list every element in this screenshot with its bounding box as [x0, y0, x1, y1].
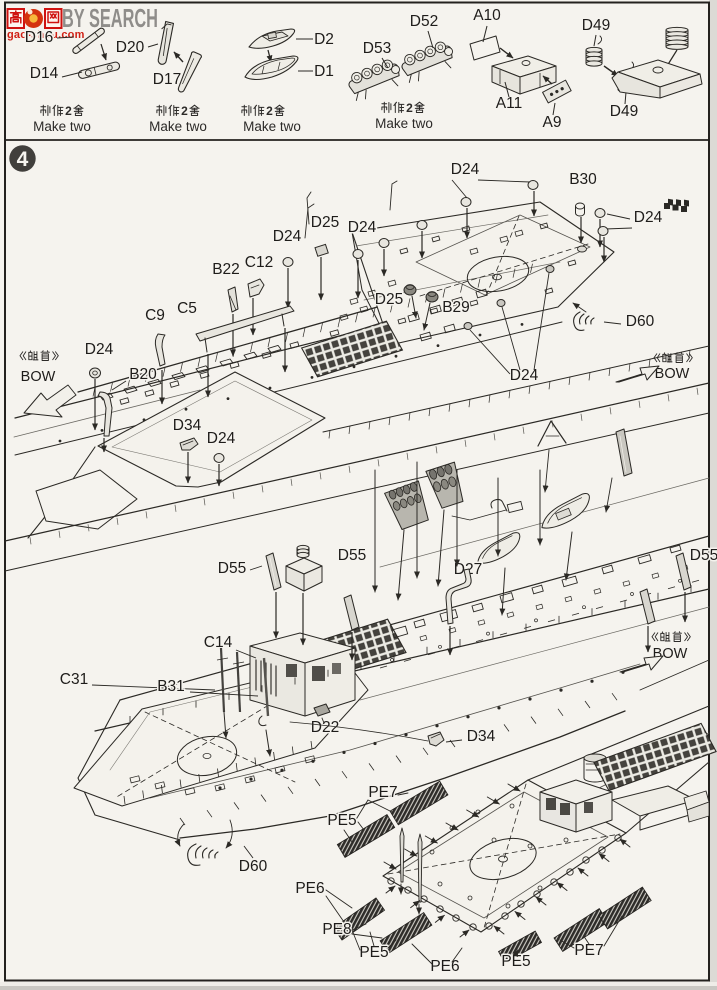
svg-text:D22: D22: [311, 719, 339, 736]
svg-text:D60: D60: [239, 858, 268, 875]
svg-text:D25: D25: [375, 291, 403, 308]
svg-text:2: 2: [406, 101, 413, 115]
svg-text:2: 2: [266, 104, 273, 118]
svg-text:B31: B31: [157, 678, 185, 695]
svg-text:B22: B22: [212, 261, 240, 278]
svg-text:2: 2: [181, 104, 188, 118]
svg-text:D49: D49: [582, 17, 610, 34]
svg-text:D14: D14: [30, 65, 59, 82]
svg-text:C12: C12: [245, 254, 273, 271]
svg-text:D24: D24: [348, 219, 377, 236]
svg-text:BOW: BOW: [655, 366, 690, 382]
svg-text:D34: D34: [173, 417, 202, 434]
svg-text:Make two: Make two: [375, 116, 433, 131]
svg-text:D60: D60: [626, 313, 655, 330]
svg-text:PE5: PE5: [327, 812, 356, 829]
svg-text:A11: A11: [496, 95, 522, 112]
svg-text:C5: C5: [177, 300, 197, 317]
svg-text:Make two: Make two: [149, 119, 207, 134]
svg-text:PE7: PE7: [574, 942, 603, 959]
svg-text:Make two: Make two: [243, 119, 301, 134]
svg-text:PE7: PE7: [368, 784, 397, 801]
svg-text:2: 2: [65, 104, 72, 118]
svg-text:B29: B29: [442, 299, 470, 316]
svg-text:C14: C14: [204, 634, 233, 651]
svg-text:D53: D53: [363, 40, 391, 57]
svg-text:D17: D17: [153, 71, 181, 88]
svg-text:Make two: Make two: [33, 119, 91, 134]
svg-text:D20: D20: [116, 39, 145, 56]
svg-text:D24: D24: [85, 341, 114, 358]
svg-text:D34: D34: [467, 728, 496, 745]
svg-text:D16: D16: [25, 29, 53, 46]
svg-text:A9: A9: [543, 114, 562, 131]
svg-text:D49: D49: [610, 103, 638, 120]
svg-text:PE5: PE5: [359, 944, 388, 961]
svg-text:D55: D55: [690, 547, 717, 564]
svg-text:B30: B30: [569, 171, 597, 188]
svg-text:D55: D55: [218, 560, 246, 577]
svg-text:C31: C31: [60, 671, 88, 688]
svg-text:D25: D25: [311, 214, 339, 231]
svg-text:D24: D24: [634, 209, 663, 226]
svg-text:PE6: PE6: [295, 880, 324, 897]
svg-text:PE5: PE5: [501, 953, 530, 970]
svg-text:4: 4: [17, 148, 29, 171]
svg-text:D55: D55: [338, 547, 366, 564]
svg-text:D24: D24: [451, 161, 480, 178]
svg-text:A10: A10: [473, 7, 501, 24]
svg-text:D1: D1: [314, 63, 334, 80]
svg-text:BOW: BOW: [21, 369, 56, 385]
svg-text:D24: D24: [207, 430, 236, 447]
svg-text:B20: B20: [129, 366, 157, 383]
svg-text:PE6: PE6: [430, 958, 459, 975]
svg-text:PE8: PE8: [322, 921, 351, 938]
svg-text:C9: C9: [145, 307, 165, 324]
svg-text:D2: D2: [314, 31, 334, 48]
svg-text:D24: D24: [273, 228, 302, 245]
svg-text:D52: D52: [410, 13, 438, 30]
